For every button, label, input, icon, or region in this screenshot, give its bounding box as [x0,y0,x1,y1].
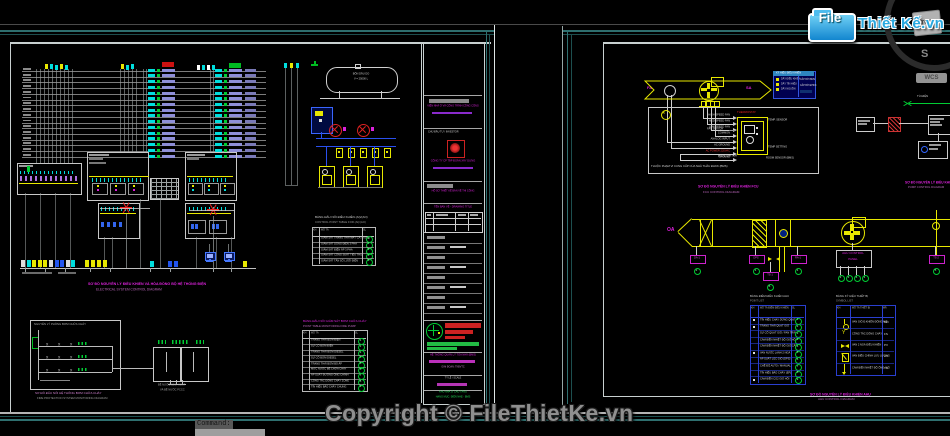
busbar [187,176,233,177]
damper-actuator [932,222,940,230]
db-block [215,126,222,129]
blue-chip [216,224,219,229]
wire [209,244,210,252]
db-block [229,126,242,129]
point-number: 3 [795,332,800,335]
table1-title: BẢNG ĐẤU NỐI ĐIỀU KHIỂN (AI)/(AO) [315,216,368,219]
titleblock-line [424,375,482,376]
field-label [427,246,445,249]
text-mark [930,124,942,126]
text-mark [187,158,199,160]
legend-title: KÝ HIỆU ĐIỀU KHIỂN [776,72,801,75]
sheet-border [567,30,568,404]
riser-tag [65,65,68,70]
db-block [229,114,242,117]
autocad-model-space[interactable]: Copyright © FileThietKe.vn File Thiết Kế… [0,0,950,436]
io-dot [753,326,755,328]
table1-title-en: CONTROL POINT TABLE FOR (AI)/(AO) [315,221,366,224]
fan-blade [844,231,851,235]
logo-brand-text: Thiết Kế.vn [858,16,944,33]
riser-line [68,69,69,163]
db-block [245,92,256,95]
point-number: 3 [358,351,363,354]
temp-sensor-label: TEMP. SENSOR [768,119,787,122]
db-block [245,137,256,140]
pipe [350,147,351,166]
field-value [450,286,466,288]
point-number: 6 [767,285,772,288]
db-block [148,74,155,77]
db-block [157,126,160,129]
table2-title-en: POINT TABLE MONITORING FIRE PUMP [303,325,356,328]
dot [133,185,135,187]
feeder-box [92,183,108,195]
breaker-ticks [92,178,144,182]
caption-electrical-en: ELECTRICAL SYSTEM CONTROL DIAGRAM [96,288,162,292]
pipe [166,352,167,372]
wire-label: MED SPEED FAN [680,120,730,123]
company-name: CÔNG TY CP TẬP ĐOÀN XÂY DỰNG [426,160,480,163]
point-number: 5 [366,259,371,262]
red-label-block [162,62,174,67]
point-number: 7 [795,365,800,368]
paper-edge [562,26,563,408]
symbol-icon [845,344,849,348]
chw-pipe [784,246,785,272]
bus-chip [91,260,95,267]
point-number: 1 [358,339,363,342]
monitor-screen [207,254,213,258]
table-cell: VAN 2 NGẢ ĐIỀU KHIỂN [852,344,881,347]
riser-line [297,68,298,185]
bus-chip [43,260,47,267]
wire [770,262,771,272]
db-block [148,120,155,123]
bus-chip [21,260,25,267]
db-block [157,74,160,77]
wire [856,266,857,275]
pipe [38,346,112,347]
db-block [229,97,242,100]
display [744,125,755,134]
floor-label-mark [23,148,31,150]
io-dot [753,379,755,381]
table-cell: SỰ CỐ BƠM ĐIỆN [311,345,333,348]
riser-line [120,69,121,152]
sensor-label: RA-1 [792,257,804,260]
col-header: KH [303,332,306,335]
table-cell: GIÁM SÁT TRẠNG THÁI MÁY CẮT TỔNG [321,237,370,240]
sprinkler-row [158,340,166,344]
riser-tag [290,63,293,68]
db-block [224,86,227,89]
bus-chip [49,260,53,267]
company-logo-mark [450,143,460,153]
table-cell: GIÁM SÁT DÒNG ĐIỆN 3 PHA [321,243,357,246]
db-block [148,155,155,158]
db-block [148,103,155,106]
pipe [374,147,375,166]
inner-box [322,175,332,185]
db-block [162,137,175,140]
riser-tag [202,65,205,70]
col-header: MÔ TẢ [311,332,319,335]
table-cell: TÍN HIỆU BÁO CHÁY CHUNG [311,386,346,389]
meter-row [20,176,77,181]
db-block [162,92,175,95]
db-block [229,74,242,77]
table-cell: GIÁM SÁT TẦN SỐ LƯỚI ĐIỆN [321,260,358,263]
pump-panel-label: TỦ ĐIỆN [917,95,928,98]
db-block [245,109,256,112]
fire-box-title: NGUYÊN LÝ PHÒNG BƠM CHỮA CHÁY [34,323,86,326]
point-number: 1 [862,276,867,279]
fan-switch-label: FAN SWITCH [707,128,723,131]
dot [338,151,340,153]
point-number: 9 [795,378,800,381]
wire [848,266,849,275]
db-block [245,97,256,100]
riser-line [128,69,129,152]
text-mark [858,120,870,122]
symbol-icon: Y [842,330,845,336]
table-cell: MỨC NƯỚC BỂ CHỮA CHÁY [311,368,347,371]
wire-label: HIGH SPEED FAN [680,114,730,117]
text-mark [19,165,33,167]
table-cell: GIÁM SÁT CÔNG SUẤT TIÊU THỤ [321,254,362,257]
point-number: 7 [358,374,363,377]
db-block [245,86,256,89]
monitor-screen [226,254,232,258]
wire [110,268,111,272]
col-header: MÔ TẢ [321,229,329,232]
breaker-ticks [189,178,229,182]
db-block [162,86,175,89]
db-block [162,126,175,129]
green-bar [427,347,457,350]
legend-note: CẤP BỞI BMS [800,78,815,81]
cooling-coil [752,220,767,248]
project-line: HẠNG MỤC: ĐIỆN NHẸ - BMS [426,396,480,399]
floor-label-mark [23,142,31,144]
floor-label-mark [23,114,31,116]
titleblock-line [424,320,482,321]
titleblock-line [424,181,482,182]
field-label [427,236,445,239]
blue-chip [195,224,198,229]
db-block [229,137,242,140]
point-number: 8 [795,371,800,374]
text-mark [427,214,431,216]
symbol-icon [842,372,846,375]
db-block [157,103,160,106]
wire [40,193,41,268]
floor-label-mark [23,125,31,127]
db-block [157,149,160,152]
point-number: 4 [366,254,371,257]
field-value [450,246,466,248]
viewcube-south-label[interactable]: S [921,48,928,60]
point-number: 5 [933,269,938,272]
bus-chip [150,261,154,267]
col-header: MÃ [883,307,887,310]
text-mark [89,162,106,164]
monitor-base [206,261,213,262]
pipe [38,372,112,373]
wire [126,214,127,268]
db-block [215,109,222,112]
db-block [162,132,175,135]
monitor-base [225,261,232,262]
overload-block [888,117,901,132]
text-mark [929,144,941,146]
riser-line [72,69,73,163]
db-block [162,97,175,100]
floor-label-mark [23,79,31,81]
floor-label-mark [23,137,31,139]
sheet-border [0,34,494,35]
green-feeder [909,103,950,104]
bus-chip [38,260,42,267]
comms-bus [20,268,256,269]
point-number: 2 [838,276,843,279]
symbol-code: CV [884,355,888,358]
sensor-label: DA-1 [691,257,703,260]
db-block [224,114,227,117]
db-block [224,97,227,100]
wire [899,123,928,124]
point-number: 2 [694,269,699,272]
dot [224,185,226,187]
text-mark [930,121,940,123]
legend-swatch [800,90,812,93]
wire [873,123,888,124]
floor-label-mark [23,97,31,99]
investor-label: CHỦ ĐẦU TƯ / INVESTOR [428,131,459,134]
feeder-box [204,183,219,195]
text-mark [930,118,944,120]
wire [150,268,151,272]
caption-ahu-en: AHU CONTROL DIAGRAM [818,398,855,401]
riser-line [36,69,37,163]
wire-label: AC POWER 220VAC [680,150,730,153]
section-line [790,219,791,246]
col-header: MÔ TẢ THIẾT BỊ [852,307,870,310]
col-header: KH [751,307,754,310]
db-block [148,132,155,135]
caption-fire-vi: SƠ ĐỒ ĐẤU NỐI HỆ THỐNG BƠM CHỮA CHÁY [35,392,101,395]
schedule-grid [150,178,179,200]
command-input[interactable] [195,429,265,436]
floor-label-mark [23,91,31,93]
riser-line [285,68,286,185]
field-label [427,256,445,259]
section-line [775,219,776,246]
text-mark [40,380,70,381]
dot [362,151,364,153]
caption-fcu-vi: SƠ ĐỒ NGUYÊN LÝ ĐIỀU KHIỂN FCU [698,185,758,189]
bus-chip [32,260,36,267]
db-block [157,97,160,100]
table-line [836,317,894,318]
titleblock-line [424,253,482,254]
ahu-panel-label: AHU CONTROL [837,252,869,255]
blue-chip [107,222,110,227]
caption-ahu-vi: SƠ ĐỒ NGUYÊN LÝ ĐIỀU KHIỂN AHU [810,393,871,397]
table-line [425,224,481,225]
wire [112,237,113,268]
db-block [215,97,222,100]
viewcube-wcs-button[interactable]: WCS [916,73,947,83]
point-number: 2 [366,242,371,245]
frame-line [10,42,491,44]
underline-bar [433,167,473,169]
dot [756,133,758,135]
knob [746,136,754,144]
sheet-border [571,34,572,402]
note-line: GIAI ĐOẠN: TKBVTC [431,366,475,369]
symbol-icon [844,364,845,372]
dot [115,185,117,187]
sensor-label: TS-2 [930,257,942,260]
mode-switch-label: MODE SWITCH [718,155,737,158]
riser-line [60,69,61,163]
col-header: KH [313,229,316,232]
db-block [224,137,227,140]
db-block [224,120,227,123]
col-header: KH [837,307,840,310]
point-number: 5 [795,351,800,354]
table-cell: SỰ CỐ BƠM DIESEL [311,357,336,360]
section-line [936,210,937,255]
symbol-table [836,305,896,376]
valve-icon: X [46,343,48,347]
frame-line [421,43,422,403]
db-block [224,132,227,135]
water-tank [153,347,182,382]
db-block [229,103,242,106]
wire [797,246,798,255]
wire [140,199,141,268]
magenta-bar [437,383,467,386]
stamp-text-bar [445,330,473,334]
busbar [19,183,78,184]
duct-line [692,246,950,247]
titleblock-line [424,283,482,284]
db-block [148,126,155,129]
valve-icon: X [58,356,60,360]
wire [160,199,161,268]
symbol-code: MD [884,321,889,324]
table-line [455,212,456,231]
titleblock-line [424,303,482,304]
busbar [100,213,136,214]
wire-label: COMMON [680,132,730,135]
wire [190,210,235,211]
caption-pump-vi: SƠ ĐỒ NGUYÊN LÝ ĐIỀU KHIỂN BƠM [905,181,950,185]
titleblock-line [424,263,482,264]
ground-line [320,98,400,99]
org-name: VIỆN NHÀ Ở VÀ CÔNG TRÌNH CÔNG CỘNG [425,105,481,108]
db-block [148,69,155,72]
table-cell: GIÁM SÁT ĐIỆN ÁP 3 PHA [321,249,353,252]
db-block [224,74,227,77]
point-number: 8 [358,380,363,383]
table-cell: TRẠNG THÁI BƠM BÙ ÁP [311,363,342,366]
table-cell: CẢM BIẾN CO2 GIÓ HỒI [760,378,789,381]
riser-line [56,69,57,163]
db-block [215,74,222,77]
wire [213,268,214,272]
table-line [836,328,894,329]
table-cell: CẢM BIẾN NHIỆT ĐỘ GIÓ HỒI [760,339,796,342]
bus-chip [66,260,70,267]
col-header: SL [792,307,795,310]
db-block [157,137,160,140]
col-header: MÔ TẢ ĐIỂM ĐIỀU KHIỂN [760,307,789,310]
pipe [38,359,112,360]
fcu-duct-banner [640,78,780,104]
symbol-code: PV [884,344,888,347]
sprinkler-row [78,355,88,358]
table-line [798,76,799,97]
command-prompt[interactable]: Command: [195,420,233,429]
bus-chip [243,261,247,267]
caption-pump-en: PUMP CONTROL DIAGRAM [908,186,944,189]
valve-icon: X [46,369,48,373]
riser-line [44,69,45,163]
dot [756,127,758,129]
duct-line [692,219,950,220]
titleblock-line [424,243,482,244]
db-block [224,109,227,112]
bus-chip [174,261,178,267]
sprinkler-row [78,342,88,345]
valve-box [360,148,367,158]
db-block [148,143,155,146]
point-number: 1 [795,318,800,321]
floor-label-mark [23,85,31,87]
riser-line [285,185,298,186]
wire [196,237,197,268]
text-mark [429,99,469,103]
titleblock-line [424,273,482,274]
wire [755,246,756,255]
pipe [316,146,396,147]
project-line: KHU NHÀ Ở CAO TẦNG [428,391,478,394]
blue-chip [191,224,194,229]
point-number: 4 [795,345,800,348]
wire-arrow-icon [733,158,737,162]
col-header: SL [355,332,358,335]
table-cell: ÁP SUẤT LỌC GIÓ (DPS) [760,358,790,361]
db-block [245,114,256,117]
db-block [215,132,222,135]
caption-tanks: VÀ BỂ NƯỚC PCCC [160,389,185,392]
db-block [157,155,160,158]
table-cell: VAN GIÓ Đ.KHIỂN ĐÓNG MỞ [852,321,887,324]
water-tank [180,347,209,382]
field-label [427,266,445,269]
titleblock-line [424,128,482,129]
dot [208,189,210,191]
filter-frame [712,220,713,246]
tank-leg [339,91,340,98]
caption-fcu-en: FCU CONTROL DIAGRAM [703,191,739,194]
approve-line: HỒ SƠ THIẾT KẾ BẢN VẼ THI CÔNG [426,190,480,193]
db-block [148,97,155,100]
dot [438,332,440,334]
